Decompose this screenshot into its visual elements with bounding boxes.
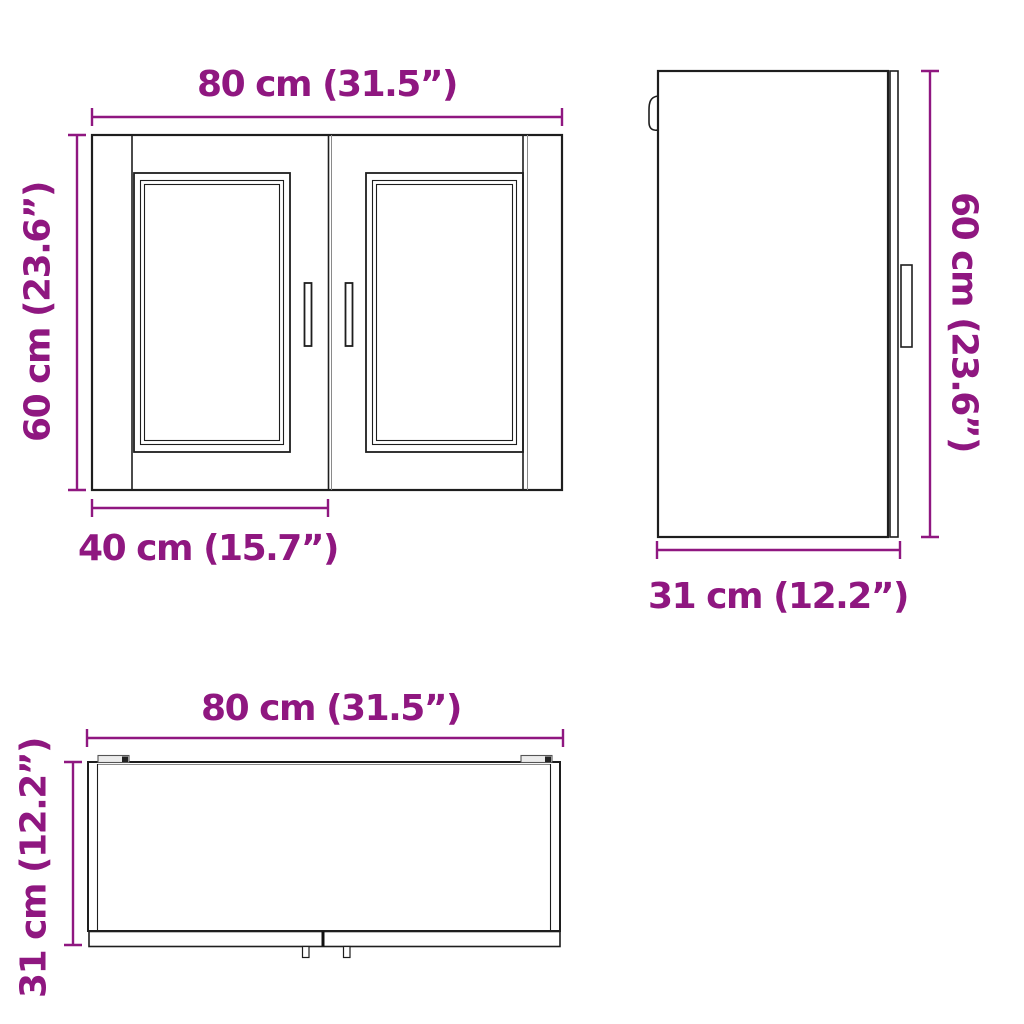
side-door-handle [901,265,912,347]
top-right-handle-tab [344,947,351,958]
diagram-canvas: 80 cm (31.5”) 60 cm (23.6”) 40 cm (15.7”… [0,0,1024,1024]
front-door-width-dimension-line [92,499,328,517]
front-door-width-dimension: 40 cm (15.7”) [78,499,338,569]
side-view: 60 cm (23.6”) 31 cm (12.2”) [648,71,984,617]
front-cabinet-outline [92,135,562,490]
side-depth-dimension: 31 cm (12.2”) [648,541,908,617]
side-height-dimension-line [921,71,939,537]
top-depth-dimension-line [64,762,82,945]
front-view: 80 cm (31.5”) 60 cm (23.6”) 40 cm (15.7”… [18,64,563,569]
side-cabinet-outline [658,71,888,537]
front-width-dimension-line [92,108,562,126]
front-right-door-handle [346,283,353,346]
top-width-dimension-label: 80 cm (31.5”) [201,688,461,729]
front-left-door-handle [305,283,312,346]
left-hinge-pin [122,757,128,763]
side-wall-hook [649,96,658,130]
product-dimension-diagram: 80 cm (31.5”) 60 cm (23.6”) 40 cm (15.7”… [0,0,1024,1024]
side-door-slab [890,71,898,537]
side-depth-dimension-line [657,541,900,559]
front-door-width-dimension-label: 40 cm (15.7”) [78,528,338,569]
right-hinge-pin [545,757,551,763]
side-depth-dimension-label: 31 cm (12.2”) [648,576,908,617]
top-cabinet-outline [88,762,560,931]
top-width-dimension: 80 cm (31.5”) [87,688,563,747]
top-door-gap [322,932,325,947]
top-view: 80 cm (31.5”) 31 cm (12.2”) [14,688,564,998]
side-height-dimension-label: 60 cm (23.6”) [944,192,985,452]
top-left-handle-tab [303,947,310,958]
front-height-dimension-line [68,135,86,490]
top-depth-dimension-label: 31 cm (12.2”) [14,738,55,998]
front-height-dimension-label: 60 cm (23.6”) [18,182,59,442]
front-height-dimension: 60 cm (23.6”) [18,135,87,490]
top-depth-dimension: 31 cm (12.2”) [14,738,83,998]
top-width-dimension-line [87,729,563,747]
front-width-dimension-label: 80 cm (31.5”) [197,64,457,105]
front-width-dimension: 80 cm (31.5”) [92,64,562,126]
side-height-dimension: 60 cm (23.6”) [921,71,985,537]
